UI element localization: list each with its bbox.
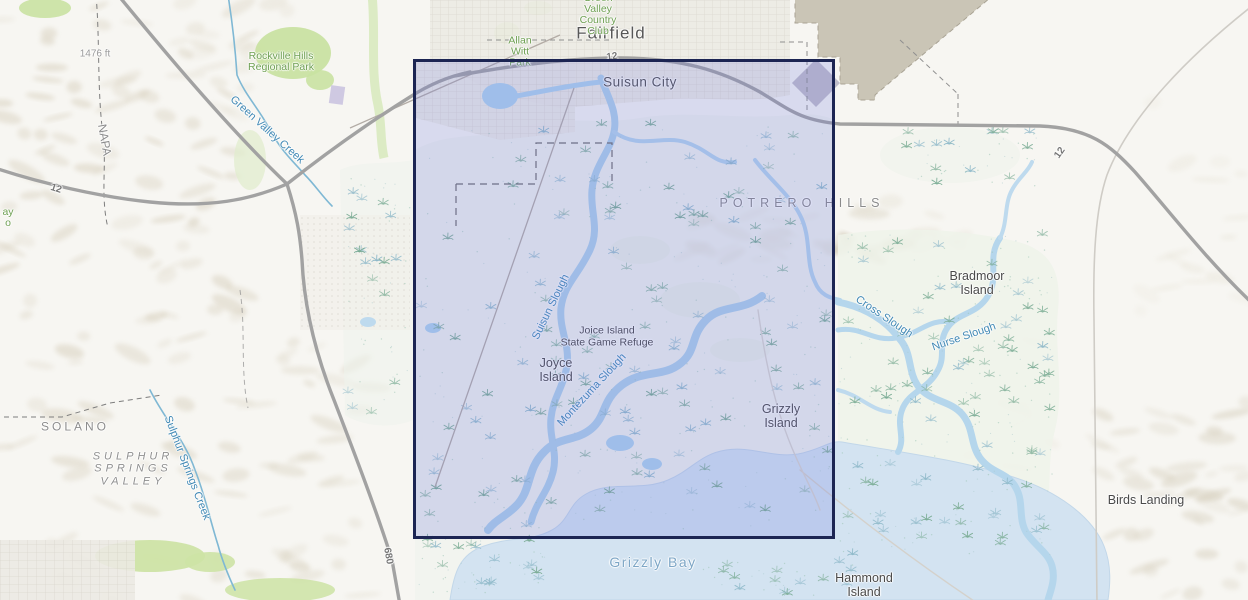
- extent-rectangle[interactable]: [413, 59, 835, 539]
- map-viewport[interactable]: FairfieldSuisun CityAllan Witt ParkGreen…: [0, 0, 1248, 600]
